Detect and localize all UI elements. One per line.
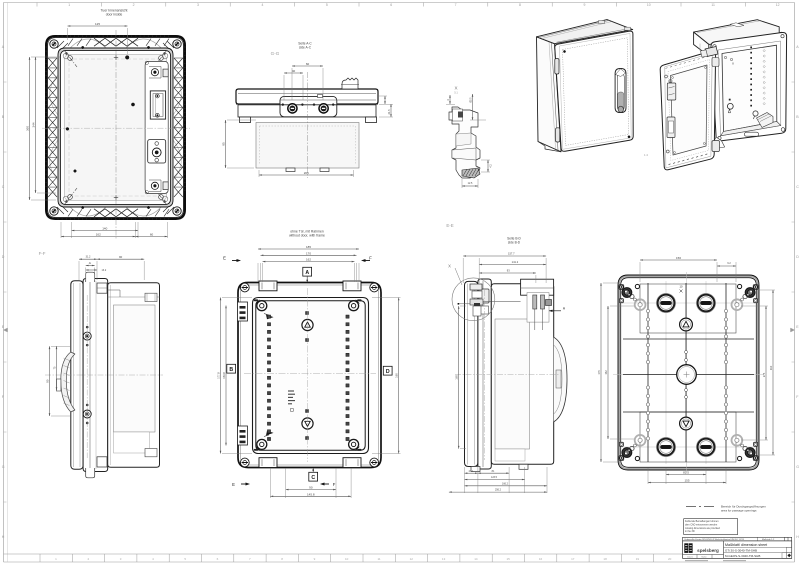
svg-text:60: 60 bbox=[306, 62, 310, 66]
svg-text:D: D bbox=[386, 369, 390, 375]
svg-text:G: G bbox=[796, 465, 799, 469]
svg-text:13.2: 13.2 bbox=[102, 269, 107, 272]
svg-text:C: C bbox=[2, 185, 5, 189]
svg-text:7: 7 bbox=[249, 557, 251, 561]
svg-text:4.2: 4.2 bbox=[490, 164, 493, 168]
svg-text:D: D bbox=[796, 255, 799, 259]
svg-text:A: A bbox=[305, 270, 309, 276]
svg-text:5: 5 bbox=[326, 3, 328, 7]
svg-text:275: 275 bbox=[762, 372, 766, 377]
svg-text:Maßstab 1:2: Maßstab 1:2 bbox=[762, 538, 775, 541]
svg-text:31.2: 31.2 bbox=[86, 256, 91, 259]
svg-text:12.5: 12.5 bbox=[468, 182, 473, 185]
svg-text:93: 93 bbox=[507, 269, 510, 273]
svg-text:8: 8 bbox=[281, 557, 283, 561]
svg-text:H: H bbox=[2, 535, 5, 539]
svg-text:162: 162 bbox=[306, 258, 311, 262]
svg-text:side A-C: side A-C bbox=[299, 46, 312, 50]
svg-text:360: 360 bbox=[26, 126, 30, 131]
svg-text:165: 165 bbox=[455, 375, 459, 380]
svg-text:185: 185 bbox=[306, 245, 311, 249]
svg-text:E: E bbox=[223, 256, 226, 261]
svg-text:area for passage openings: area for passage openings bbox=[721, 508, 757, 512]
svg-text:4x: 4x bbox=[89, 263, 92, 265]
svg-text:F: F bbox=[2, 395, 5, 399]
svg-text:14: 14 bbox=[474, 557, 478, 561]
svg-text:166.2: 166.2 bbox=[502, 482, 509, 485]
svg-text:21.5: 21.5 bbox=[387, 109, 391, 115]
svg-text:E-E: E-E bbox=[446, 223, 453, 228]
svg-text:12: 12 bbox=[776, 3, 780, 7]
svg-text:6: 6 bbox=[217, 557, 219, 561]
svg-text:152: 152 bbox=[604, 370, 608, 375]
svg-text:Datum: Datum bbox=[687, 556, 693, 559]
svg-text:123.5: 123.5 bbox=[491, 476, 498, 479]
svg-text:Name: Name bbox=[701, 557, 706, 559]
svg-text:6: 6 bbox=[390, 3, 392, 7]
svg-text:without door, with frame: without door, with frame bbox=[289, 234, 325, 238]
svg-text:156: 156 bbox=[676, 256, 681, 260]
svg-text:E: E bbox=[796, 325, 799, 329]
svg-text:2: 2 bbox=[87, 557, 89, 561]
svg-text:125: 125 bbox=[95, 22, 100, 26]
svg-text:10: 10 bbox=[345, 557, 349, 561]
svg-text:175: 175 bbox=[597, 370, 601, 375]
svg-text:GTi 30-S-3040-TM-SHB: GTi 30-S-3040-TM-SHB bbox=[725, 548, 757, 552]
svg-text:M-GEOS-S-3040-TM-SHB: M-GEOS-S-3040-TM-SHB bbox=[725, 554, 760, 558]
svg-text:Ø2.5: Ø2.5 bbox=[471, 97, 473, 103]
svg-text:11: 11 bbox=[377, 557, 380, 561]
svg-text:B: B bbox=[796, 115, 799, 119]
svg-text:7: 7 bbox=[455, 3, 457, 7]
svg-text:F: F bbox=[369, 256, 372, 261]
svg-text:170: 170 bbox=[306, 251, 311, 255]
svg-text:8: 8 bbox=[519, 3, 521, 7]
svg-text:E: E bbox=[2, 325, 5, 329]
svg-text:157.7: 157.7 bbox=[508, 252, 515, 256]
svg-text:1: 1 bbox=[55, 557, 57, 561]
svg-text:177.8: 177.8 bbox=[217, 372, 221, 379]
svg-text:344: 344 bbox=[32, 122, 36, 127]
svg-text:side B-D: side B-D bbox=[508, 241, 521, 245]
svg-text:X: X bbox=[448, 264, 451, 269]
svg-text:75: 75 bbox=[54, 366, 57, 369]
svg-text:C: C bbox=[311, 475, 315, 481]
svg-text:90: 90 bbox=[119, 255, 123, 259]
svg-text:spelsberg: spelsberg bbox=[697, 548, 719, 553]
svg-text:1: 1 bbox=[68, 3, 70, 7]
svg-text:160: 160 bbox=[395, 373, 399, 378]
svg-text:153.8: 153.8 bbox=[222, 372, 226, 379]
svg-text:F: F bbox=[333, 482, 336, 487]
svg-text:205: 205 bbox=[304, 171, 309, 175]
svg-text:82.5: 82.5 bbox=[683, 471, 689, 475]
svg-text:5:1: 5:1 bbox=[454, 91, 458, 95]
svg-text:2: 2 bbox=[133, 3, 135, 7]
svg-text:G-G: G-G bbox=[271, 51, 280, 56]
svg-text:81: 81 bbox=[492, 470, 495, 473]
svg-text:17: 17 bbox=[571, 557, 575, 561]
svg-text:D: D bbox=[2, 255, 5, 259]
svg-text:B: B bbox=[229, 367, 233, 373]
svg-text:6.2: 6.2 bbox=[727, 262, 731, 265]
svg-text:5: 5 bbox=[184, 557, 186, 561]
svg-text:27.1: 27.1 bbox=[469, 470, 474, 473]
svg-text:4: 4 bbox=[152, 557, 154, 561]
svg-text:155: 155 bbox=[684, 479, 689, 483]
svg-text:12: 12 bbox=[410, 557, 414, 561]
svg-text:145.8: 145.8 bbox=[307, 492, 315, 496]
svg-text:90: 90 bbox=[309, 486, 313, 490]
svg-text:G: G bbox=[2, 465, 5, 469]
svg-text:9: 9 bbox=[314, 557, 316, 561]
svg-text:H: H bbox=[796, 535, 799, 539]
svg-text:256.2: 256.2 bbox=[495, 489, 502, 492]
svg-text:141.2: 141.2 bbox=[512, 260, 519, 264]
svg-text:C: C bbox=[796, 185, 799, 189]
svg-text:15: 15 bbox=[507, 557, 511, 561]
svg-text:11: 11 bbox=[711, 3, 715, 7]
svg-text:Maßblatt/ dimension sheet: Maßblatt/ dimension sheet bbox=[725, 543, 767, 547]
svg-text:F-F: F-F bbox=[39, 251, 46, 256]
svg-text:9: 9 bbox=[583, 3, 585, 7]
svg-text:85: 85 bbox=[222, 142, 226, 146]
svg-text:Unbemaßte Kanten DIN 6784-0.3: Unbemaßte Kanten DIN 6784-0.3 Werkstückk… bbox=[684, 538, 745, 541]
svg-text:B: B bbox=[2, 115, 5, 119]
svg-text:40: 40 bbox=[292, 69, 296, 73]
svg-text:10: 10 bbox=[647, 3, 651, 7]
svg-text:in the 3D: in the 3D bbox=[685, 530, 695, 533]
svg-text:4: 4 bbox=[261, 3, 263, 7]
svg-text:A: A bbox=[796, 45, 799, 49]
svg-text:60: 60 bbox=[150, 233, 154, 237]
svg-text:A: A bbox=[563, 307, 566, 311]
svg-text:door inside: door inside bbox=[106, 13, 123, 17]
svg-text:20: 20 bbox=[668, 557, 672, 561]
svg-text:3: 3 bbox=[197, 3, 199, 7]
svg-text:A: A bbox=[2, 45, 5, 49]
svg-text:X: X bbox=[454, 86, 457, 91]
svg-text:3: 3 bbox=[120, 557, 122, 561]
svg-text:3: 3 bbox=[447, 99, 450, 101]
svg-text:16: 16 bbox=[539, 557, 543, 561]
svg-text:140: 140 bbox=[102, 227, 107, 231]
svg-text:90: 90 bbox=[46, 379, 50, 383]
svg-text:310: 310 bbox=[769, 365, 773, 370]
svg-text:13: 13 bbox=[442, 557, 446, 561]
svg-text:19: 19 bbox=[636, 557, 640, 561]
svg-text:162: 162 bbox=[96, 233, 101, 237]
svg-text:E: E bbox=[232, 482, 235, 487]
svg-text:F: F bbox=[796, 395, 799, 399]
svg-text:18: 18 bbox=[603, 557, 607, 561]
svg-text:1:4: 1:4 bbox=[644, 153, 648, 157]
